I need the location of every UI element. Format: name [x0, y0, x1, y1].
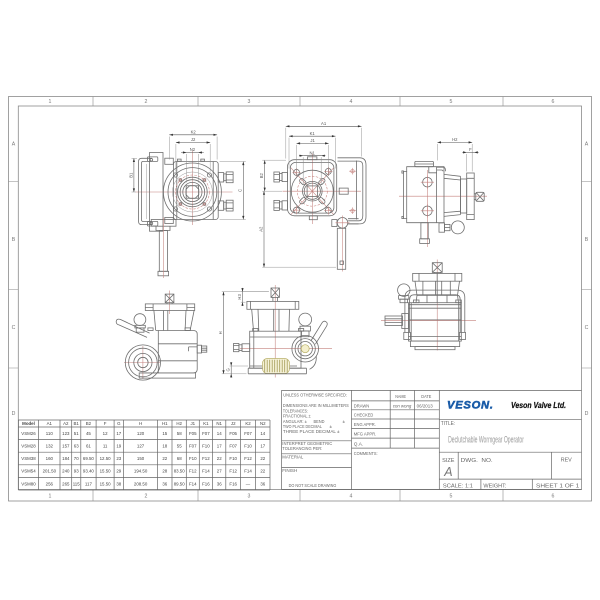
svg-text:61: 61	[86, 444, 91, 449]
svg-text:22: 22	[162, 456, 167, 461]
svg-text:C: C	[12, 325, 16, 331]
svg-text:H: H	[218, 331, 223, 334]
svg-text:A1: A1	[321, 121, 327, 126]
svg-text:J2: J2	[231, 421, 236, 426]
svg-text:38: 38	[116, 481, 121, 486]
svg-text:K2: K2	[245, 421, 251, 426]
svg-text:22: 22	[217, 456, 222, 461]
svg-text:DO NOT SCALE DRAWING: DO NOT SCALE DRAWING	[289, 483, 337, 488]
svg-text:160: 160	[46, 456, 54, 461]
svg-text:A2: A2	[258, 226, 263, 232]
svg-text:69.50: 69.50	[83, 456, 95, 461]
svg-text:VSM28: VSM28	[21, 444, 36, 449]
svg-text:1: 1	[49, 494, 52, 500]
svg-text:VSM26: VSM26	[21, 431, 36, 436]
svg-text:B2: B2	[259, 172, 264, 178]
svg-text:F12: F12	[202, 456, 210, 461]
svg-text:ENG APPR.: ENG APPR.	[354, 422, 376, 427]
svg-text:SHEET 1 OF 1: SHEET 1 OF 1	[536, 484, 579, 490]
svg-text:REV: REV	[561, 457, 572, 463]
svg-text:DATE: DATE	[421, 394, 431, 399]
svg-text:Q.A.: Q.A.	[354, 441, 364, 446]
svg-text:N2: N2	[260, 421, 266, 426]
svg-text:F07: F07	[229, 444, 237, 449]
svg-text:SIZE: SIZE	[442, 458, 455, 464]
svg-text:VSM54: VSM54	[21, 469, 36, 474]
svg-text:83.50: 83.50	[174, 469, 186, 474]
svg-text:WEIGHT:: WEIGHT:	[483, 484, 506, 490]
svg-text:MATERIAL: MATERIAL	[282, 454, 303, 459]
svg-text:N2: N2	[190, 147, 196, 152]
svg-text:240: 240	[62, 469, 70, 474]
svg-text:CHECKED: CHECKED	[354, 413, 374, 418]
svg-text:36: 36	[217, 481, 222, 486]
svg-text:68: 68	[177, 456, 182, 461]
svg-text:132: 132	[46, 444, 54, 449]
svg-text:Model: Model	[22, 421, 35, 426]
svg-text:15.50: 15.50	[100, 469, 112, 474]
svg-text:123: 123	[62, 431, 70, 436]
svg-text:VSM80: VSM80	[21, 481, 36, 486]
svg-text:F07: F07	[244, 431, 252, 436]
svg-text:06/2013: 06/2013	[417, 404, 434, 409]
svg-text:194.50: 194.50	[134, 469, 148, 474]
svg-text:B1: B1	[128, 172, 133, 178]
svg-text:29: 29	[116, 469, 121, 474]
svg-text:H3: H3	[237, 294, 242, 300]
svg-text:89.50: 89.50	[174, 481, 186, 486]
svg-text:F07: F07	[189, 444, 197, 449]
svg-text:120: 120	[137, 431, 145, 436]
svg-text:157: 157	[62, 444, 70, 449]
svg-text:FINISH: FINISH	[282, 468, 297, 473]
svg-text:con wong: con wong	[393, 404, 412, 409]
svg-text:1: 1	[49, 99, 52, 105]
svg-text:D: D	[585, 411, 589, 417]
svg-text:F12: F12	[244, 456, 252, 461]
svg-text:23: 23	[116, 456, 121, 461]
svg-text:12: 12	[103, 431, 108, 436]
svg-text:N1: N1	[216, 421, 222, 426]
svg-text:208.50: 208.50	[134, 481, 148, 486]
svg-text:A2: A2	[63, 421, 69, 426]
svg-text:F16: F16	[202, 481, 210, 486]
svg-text:UNLESS OTHERWISE SPECIFIED:: UNLESS OTHERWISE SPECIFIED:	[283, 392, 347, 398]
svg-text:K1: K1	[310, 131, 316, 136]
svg-text:B2: B2	[86, 421, 92, 426]
svg-text:F14: F14	[244, 469, 252, 474]
svg-text:36: 36	[260, 481, 265, 486]
svg-text:COMMENTS:: COMMENTS:	[354, 451, 378, 456]
svg-text:184: 184	[62, 456, 70, 461]
svg-text:14: 14	[217, 431, 222, 436]
svg-text:150: 150	[137, 456, 145, 461]
svg-text:D: D	[12, 411, 16, 417]
svg-text:B: B	[12, 237, 16, 243]
svg-text:A1: A1	[47, 421, 53, 426]
svg-text:—: —	[246, 481, 251, 486]
svg-text:DRAWN: DRAWN	[354, 404, 370, 409]
svg-text:H2: H2	[176, 421, 182, 426]
svg-text:58: 58	[177, 431, 182, 436]
svg-text:F05: F05	[229, 431, 237, 436]
svg-text:F: F	[104, 421, 107, 426]
svg-text:256: 256	[46, 481, 54, 486]
svg-text:F12: F12	[189, 469, 197, 474]
svg-text:3: 3	[248, 494, 251, 500]
svg-text:14: 14	[260, 431, 265, 436]
svg-text:27: 27	[217, 469, 222, 474]
svg-text:DWG. NO.: DWG. NO.	[461, 458, 493, 464]
svg-text:17: 17	[260, 444, 265, 449]
svg-text:110: 110	[46, 431, 54, 436]
svg-text:F14: F14	[202, 469, 210, 474]
svg-text:VESON.: VESON.	[447, 400, 493, 412]
svg-text:51: 51	[74, 431, 79, 436]
svg-text:TITLE:: TITLE:	[441, 421, 456, 427]
svg-text:G: G	[117, 421, 121, 426]
svg-text:15: 15	[162, 431, 167, 436]
svg-text:28: 28	[162, 469, 167, 474]
svg-text:70: 70	[74, 456, 79, 461]
svg-text:17: 17	[217, 444, 222, 449]
svg-text:H1: H1	[162, 421, 168, 426]
svg-text:5: 5	[450, 494, 453, 500]
svg-text:4: 4	[350, 99, 353, 105]
svg-text:F05: F05	[189, 431, 197, 436]
svg-text:C: C	[238, 189, 243, 192]
svg-text:Veson Valve Ltd.: Veson Valve Ltd.	[511, 400, 566, 410]
svg-text:18: 18	[162, 444, 167, 449]
svg-text:12.50: 12.50	[100, 456, 112, 461]
svg-text:A: A	[12, 142, 16, 148]
svg-text:5: 5	[450, 99, 453, 105]
svg-text:F10: F10	[189, 456, 197, 461]
svg-text:H2: H2	[452, 137, 458, 142]
svg-text:SCALE: 1:1: SCALE: 1:1	[443, 484, 473, 490]
svg-text:H: H	[139, 421, 142, 426]
svg-text:F14: F14	[189, 481, 197, 486]
svg-text:F10: F10	[229, 456, 237, 461]
svg-text:F: F	[469, 147, 472, 152]
svg-text:63: 63	[74, 444, 79, 449]
svg-text:265: 265	[62, 481, 70, 486]
svg-text:93.40: 93.40	[83, 469, 95, 474]
svg-text:N1: N1	[310, 150, 316, 155]
svg-text:J2: J2	[191, 137, 196, 142]
svg-text:6: 6	[552, 99, 555, 105]
svg-text:15.50: 15.50	[100, 481, 112, 486]
svg-text:F10: F10	[202, 444, 210, 449]
svg-text:VSM38: VSM38	[21, 456, 36, 461]
svg-text:22: 22	[260, 469, 265, 474]
svg-text:2: 2	[145, 494, 148, 500]
svg-text:C: C	[585, 325, 589, 331]
svg-text:3: 3	[248, 99, 251, 105]
svg-text:117: 117	[85, 481, 93, 486]
svg-text:MFG APPR.: MFG APPR.	[354, 432, 377, 437]
svg-text:45: 45	[86, 431, 91, 436]
svg-text:4: 4	[350, 494, 353, 500]
svg-text:F12: F12	[229, 469, 237, 474]
svg-text:TOLERANCING PER:: TOLERANCING PER:	[282, 446, 322, 451]
svg-text:THREE PLACE DECIMAL ±: THREE PLACE DECIMAL ±	[283, 429, 340, 434]
svg-text:F10: F10	[244, 444, 252, 449]
svg-text:115: 115	[73, 481, 81, 486]
svg-text:Declutchable Wormgear Operator: Declutchable Wormgear Operator	[448, 435, 524, 446]
svg-text:K1: K1	[203, 421, 209, 426]
svg-text:K2: K2	[191, 130, 197, 135]
svg-text:B1: B1	[74, 421, 80, 426]
svg-text:F07: F07	[202, 431, 210, 436]
svg-text:F16: F16	[229, 481, 237, 486]
svg-text:J1: J1	[190, 421, 195, 426]
svg-text:11: 11	[103, 444, 108, 449]
svg-text:G: G	[226, 368, 231, 371]
svg-text:A: A	[443, 465, 452, 479]
svg-text:55: 55	[177, 444, 182, 449]
svg-text:B: B	[585, 237, 589, 243]
svg-text:201.50: 201.50	[43, 469, 57, 474]
svg-text:127: 127	[137, 444, 145, 449]
svg-text:36: 36	[162, 481, 167, 486]
svg-text:2: 2	[145, 99, 148, 105]
svg-text:22: 22	[260, 456, 265, 461]
svg-text:17: 17	[116, 431, 121, 436]
svg-text:A: A	[585, 142, 589, 148]
svg-text:93: 93	[74, 469, 79, 474]
svg-text:NAME: NAME	[395, 394, 406, 399]
svg-text:6: 6	[552, 494, 555, 500]
svg-text:J1: J1	[310, 138, 315, 143]
svg-text:19: 19	[116, 444, 121, 449]
